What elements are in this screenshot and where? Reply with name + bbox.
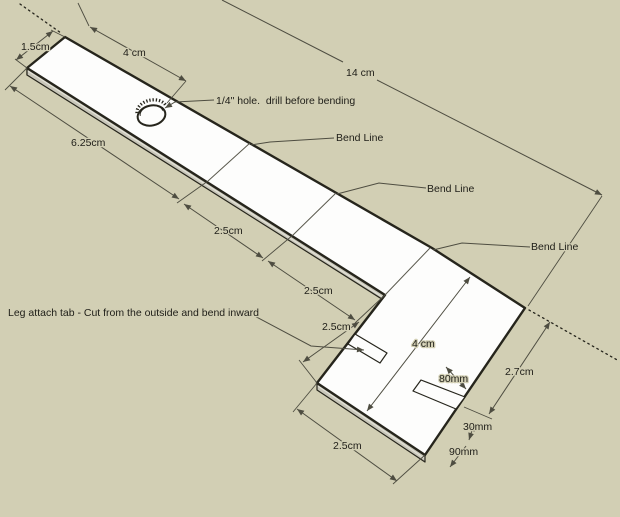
drawing-canvas: 1.5cm 4 cm 14 cm 6.25cm 2.5cm 2.5cm 2.5c… <box>0 0 620 517</box>
bend-line-2-label: Bend Line <box>427 183 474 195</box>
dim-tab-width-label: 30mm <box>463 421 492 433</box>
bend-line-1-label: Bend Line <box>336 132 383 144</box>
dim-lead-segment-label: 6.25cm <box>71 137 106 149</box>
leg-tab-note: Leg attach tab - Cut from the outside an… <box>8 307 259 319</box>
dim-foot-width-label: 4 cm <box>412 338 435 350</box>
dim-hole-offset-label: 4 cm <box>123 47 146 59</box>
dim-foot-extension-label: 2.5cm <box>322 321 351 333</box>
dim-segment-1-label: 2.5cm <box>214 225 243 237</box>
dim-segment-2-label: 2.5cm <box>304 285 333 297</box>
dim-end-width-label: 1.5cm <box>21 41 50 53</box>
dim-tab-length-label: 80mm <box>439 373 468 385</box>
dim-right-edge-offset-label: 2.7cm <box>505 366 534 378</box>
dim-tab-corner-offset-label: 90mm <box>449 446 478 458</box>
bend-line-3-label: Bend Line <box>531 241 578 253</box>
hole-note: 1/4" hole. drill before bending <box>216 95 355 107</box>
dim-foot-length-label: 2.5cm <box>333 440 362 452</box>
technical-drawing: 1.5cm 4 cm 14 cm 6.25cm 2.5cm 2.5cm 2.5c… <box>0 0 620 517</box>
dim-total-length-label: 14 cm <box>346 67 375 79</box>
